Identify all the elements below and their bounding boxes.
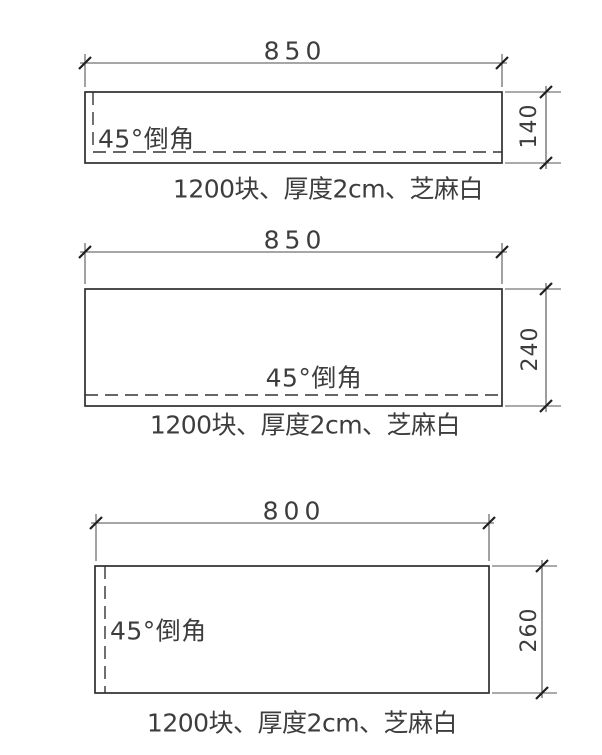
technical-drawing-canvas: 850 140 45°倒角 1200块、厚度2cm、芝麻白 850 240 45… [0, 0, 602, 755]
panel-1-width-dimension-label: 850 [264, 39, 327, 64]
panel-2-height-dimension-label: 240 [520, 327, 542, 372]
panel-3-height-dimension-label: 260 [519, 608, 541, 653]
panel-3-caption: 1200块、厚度2cm、芝麻白 [147, 711, 457, 736]
panel-1-height-dimension-label: 140 [519, 104, 541, 149]
panel-1-chamfer-label: 45°倒角 [98, 127, 195, 152]
panel-1-caption: 1200块、厚度2cm、芝麻白 [173, 177, 483, 202]
panel-3-chamfer-label: 45°倒角 [110, 619, 207, 644]
panel-3-width-dimension-label: 800 [263, 499, 326, 524]
panel-2-caption: 1200块、厚度2cm、芝麻白 [150, 413, 460, 438]
panel-2-chamfer-label: 45°倒角 [266, 366, 363, 391]
panel-2-width-dimension-label: 850 [264, 228, 327, 253]
panel-3-linework [90, 514, 557, 699]
